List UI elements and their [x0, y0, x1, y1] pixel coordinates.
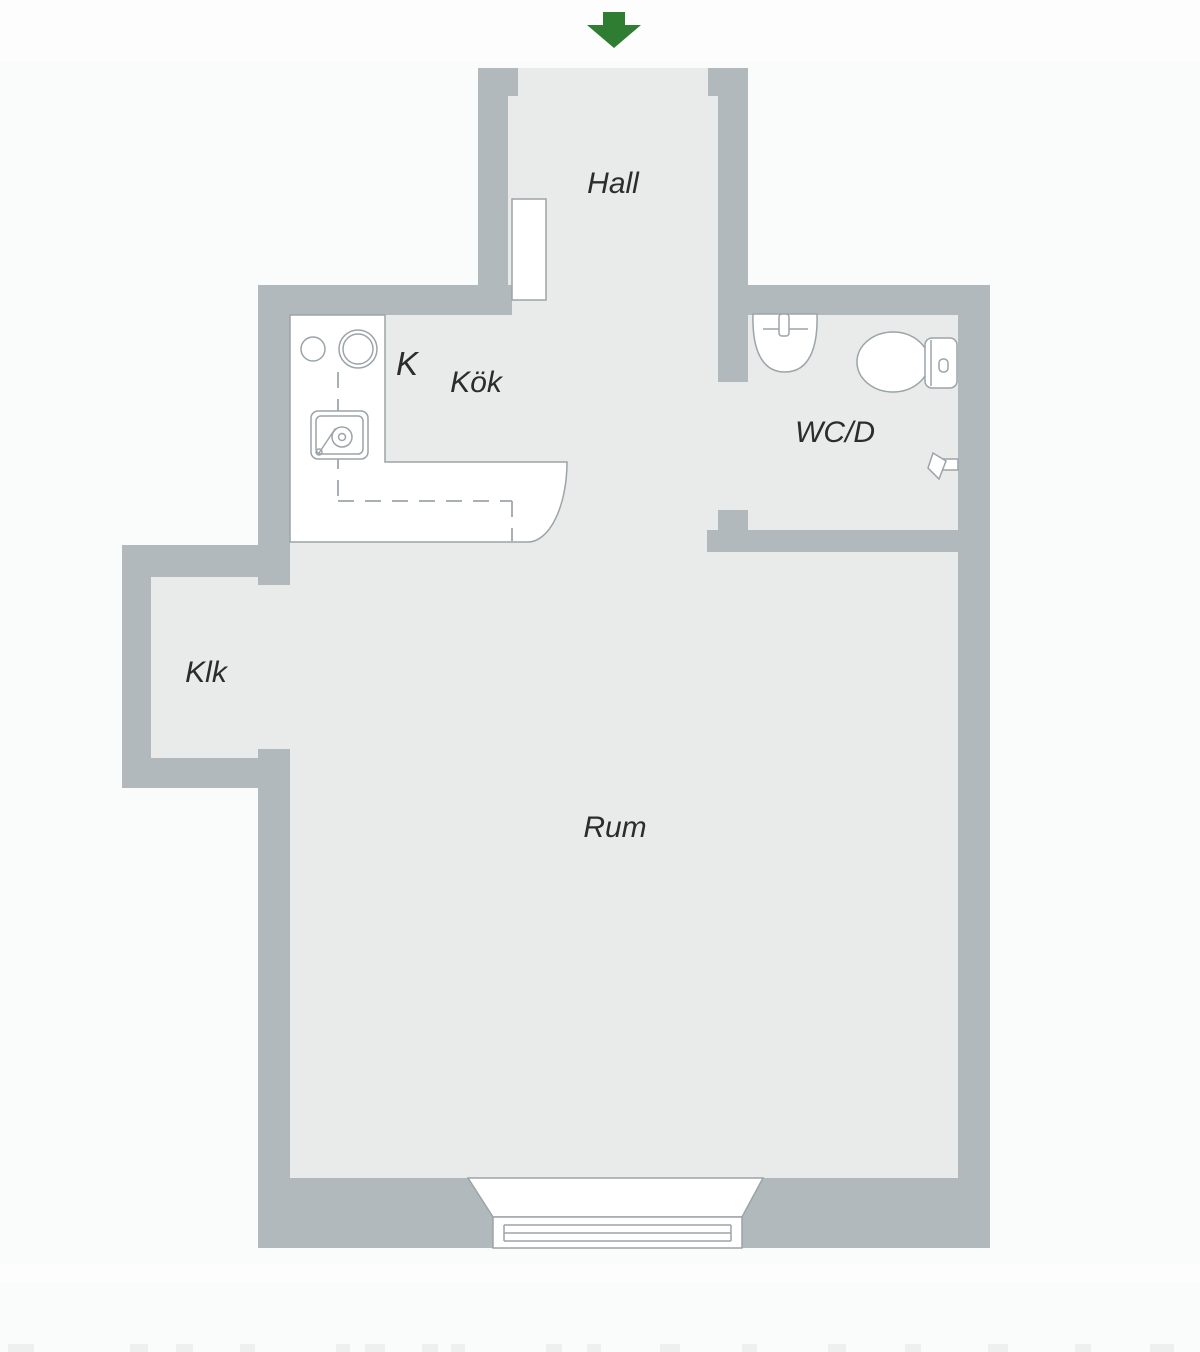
wc-top-wall	[748, 285, 958, 315]
hall-label: Hall	[587, 167, 640, 200]
hall-left-wall	[478, 68, 508, 315]
entrance-jamb-left	[508, 68, 518, 96]
left-wall-upper	[258, 315, 290, 585]
right-wall	[958, 285, 990, 1248]
kitchen-sink	[311, 411, 368, 459]
wc-basin-tap	[779, 314, 789, 336]
floor-plan: Hall K Kök WC/D Klk Rum	[0, 0, 1200, 1352]
kitchen-appliance-label: K	[396, 345, 420, 382]
main-room-label: Rum	[583, 811, 646, 844]
hall-right-wall	[718, 68, 748, 382]
window-bay	[468, 1178, 763, 1217]
wc-door-stub	[718, 510, 748, 532]
closet-label: Klk	[185, 656, 229, 689]
closet-left-wall	[122, 545, 151, 788]
wc-toilet-tank	[925, 338, 957, 388]
wc-bottom-wall	[707, 530, 958, 552]
wc-toilet	[857, 332, 957, 392]
left-wall-lower	[258, 749, 290, 1248]
kitchen-top-wall	[258, 285, 512, 315]
hall-cabinet	[512, 199, 546, 300]
gallery-edge	[0, 1283, 1200, 1352]
wc-label: WC/D	[795, 416, 875, 449]
window	[468, 1178, 763, 1248]
entrance-jamb-right	[708, 68, 718, 96]
kitchen-label: Kök	[450, 366, 504, 399]
